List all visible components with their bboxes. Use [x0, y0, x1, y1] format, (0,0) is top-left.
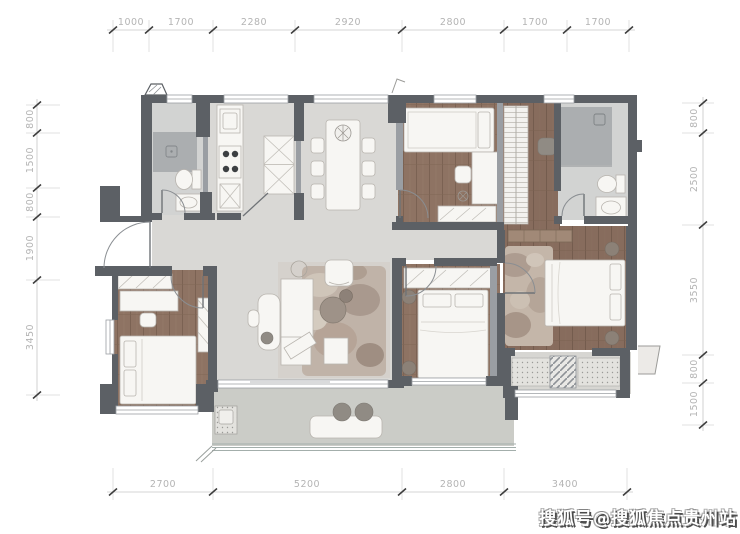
- entry-wardrobe: [118, 274, 172, 289]
- dressing-pouf: [538, 138, 556, 155]
- dim-right-3: 3550: [689, 277, 700, 303]
- dimension-line-top: 1000 1700 2280 2920 2800 1700 1700: [107, 17, 635, 52]
- pendant-light-icon: [335, 125, 351, 141]
- double-bed-master: [545, 260, 625, 326]
- entry-door: [104, 222, 150, 268]
- sink: [176, 194, 201, 211]
- dim-top-6: 1700: [522, 17, 548, 28]
- nightstand: [605, 242, 619, 256]
- drain-pipe-mark: [392, 79, 405, 93]
- nightstand: [402, 290, 416, 304]
- sink: [596, 197, 626, 218]
- double-bed: [120, 336, 196, 404]
- balcony-corner: [196, 446, 216, 462]
- dim-top-7: 1700: [585, 17, 611, 28]
- dim-left-2: 1500: [25, 147, 36, 173]
- stove-icon: [219, 146, 241, 178]
- stool: [261, 332, 273, 344]
- side-table: [340, 290, 353, 303]
- armchair: [325, 260, 353, 286]
- double-bed: [418, 290, 488, 378]
- chair: [140, 313, 156, 327]
- stool: [355, 403, 373, 421]
- kitchen-sink: [220, 109, 240, 133]
- dresser: [120, 291, 178, 311]
- corridor-floor: [398, 230, 505, 260]
- watermark: 搜狐号@搜狐焦点贵州站: [539, 504, 737, 529]
- bay-mat: [578, 358, 620, 386]
- dim-left-4: 1900: [25, 235, 36, 261]
- dimension-line-left: 800 1500 800 1900 3450: [25, 99, 60, 401]
- toilet: [598, 175, 626, 193]
- hatched-panel: [550, 356, 576, 388]
- dim-right-1: 800: [689, 108, 700, 128]
- wardrobe: [438, 206, 496, 222]
- dim-top-3: 2280: [241, 17, 267, 28]
- desk-chair: [455, 166, 471, 183]
- ac-ledge: [638, 346, 660, 374]
- extension-lines: [113, 468, 627, 500]
- dim-right-4: 800: [689, 359, 700, 379]
- wardrobe: [404, 268, 492, 288]
- shower-area: [153, 132, 197, 172]
- dimension-line-bottom: 2700 5200 2800 3400: [107, 468, 633, 500]
- master-shower-area: [560, 107, 612, 165]
- dim-bottom-1: 2700: [150, 479, 176, 490]
- dimension-line-right: 800 2500 3550 800 1500: [682, 97, 714, 431]
- dim-bottom-4: 3400: [552, 479, 578, 490]
- toilet: [176, 170, 202, 190]
- floor-plan-page: 1000 1700 2280 2920 2800 1700 1700 2700 …: [0, 0, 740, 534]
- dim-left-3: 800: [25, 192, 36, 212]
- single-bed: [404, 108, 494, 152]
- floor-plan-drawing: 1000 1700 2280 2920 2800 1700 1700 2700 …: [0, 0, 740, 534]
- dim-left-1: 800: [25, 109, 36, 129]
- tall-cabinet: [264, 136, 294, 194]
- dim-left-5: 3450: [25, 324, 36, 350]
- dim-bottom-2: 5200: [294, 479, 320, 490]
- master-bay-window: [512, 356, 620, 388]
- laundry-sink: [215, 406, 237, 434]
- desk: [472, 152, 498, 204]
- dim-bottom-3: 2800: [440, 479, 466, 490]
- ottoman: [324, 338, 348, 364]
- tv-console: [508, 230, 572, 242]
- dim-top-1: 1000: [118, 17, 144, 28]
- dim-right-5: 1500: [689, 391, 700, 417]
- dim-top-2: 1700: [168, 17, 194, 28]
- bay-mat: [512, 358, 550, 386]
- kitchen-cabinet: [220, 184, 240, 208]
- round-stool: [248, 310, 259, 327]
- dim-top-4: 2920: [335, 17, 361, 28]
- stool: [333, 403, 351, 421]
- dim-top-5: 2800: [440, 17, 466, 28]
- nightstand: [402, 361, 416, 375]
- nightstand: [605, 331, 619, 345]
- dim-right-2: 2500: [689, 166, 700, 192]
